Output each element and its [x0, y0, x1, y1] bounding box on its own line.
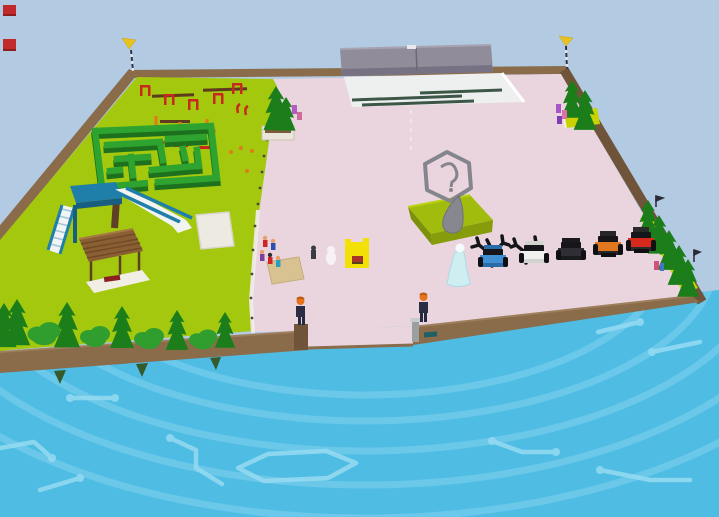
picnic-mat	[267, 257, 304, 284]
game-viewport	[0, 0, 719, 517]
small-dark-figure[interactable]	[311, 246, 316, 260]
ghost-figure[interactable]	[326, 246, 336, 265]
practice-mat	[196, 212, 234, 249]
yellow-booth[interactable]	[345, 238, 369, 268]
